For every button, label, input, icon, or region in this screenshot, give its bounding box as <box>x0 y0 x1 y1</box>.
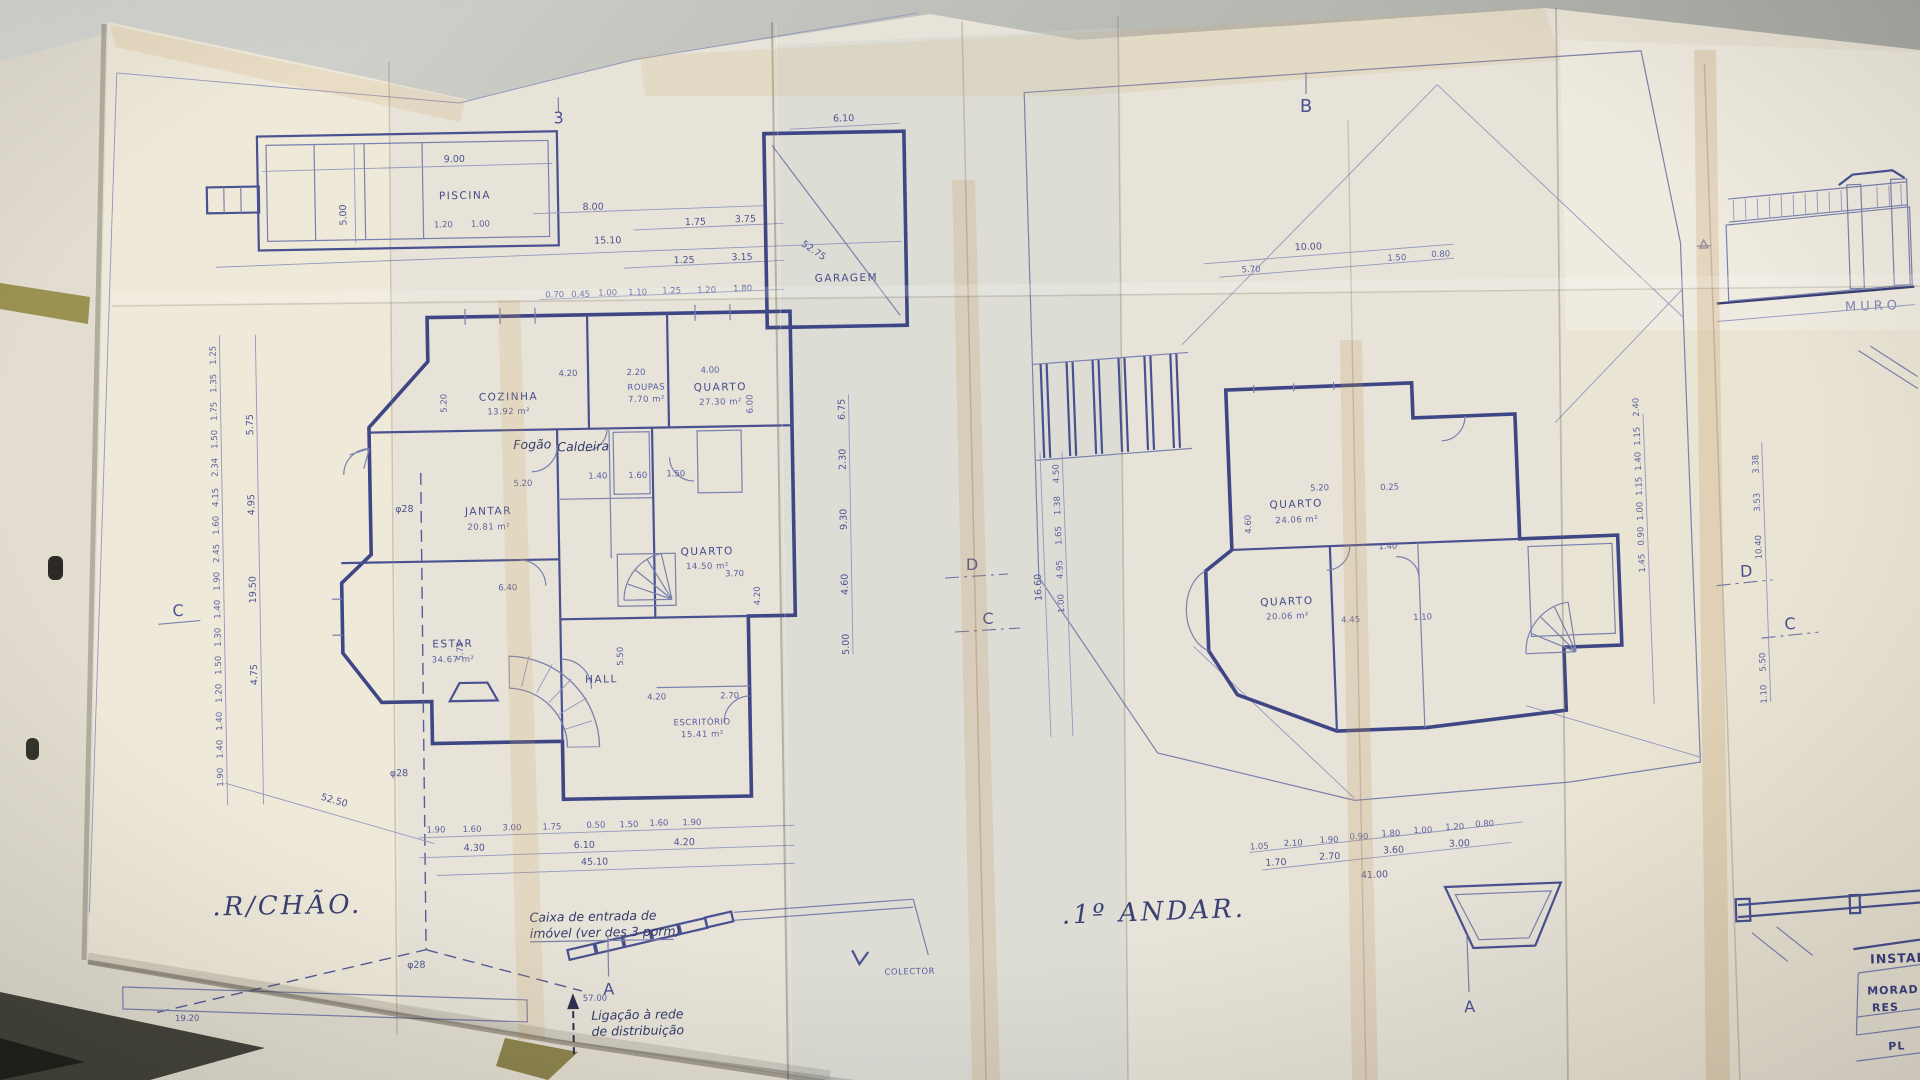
photo-canvas: 3 9.00 5.00 1.20 1.00 PISCINA 8. <box>0 0 1920 1080</box>
blueprint-photo: 3 9.00 5.00 1.20 1.00 PISCINA 8. <box>0 0 1920 1080</box>
photo-vignette <box>0 0 1920 1080</box>
